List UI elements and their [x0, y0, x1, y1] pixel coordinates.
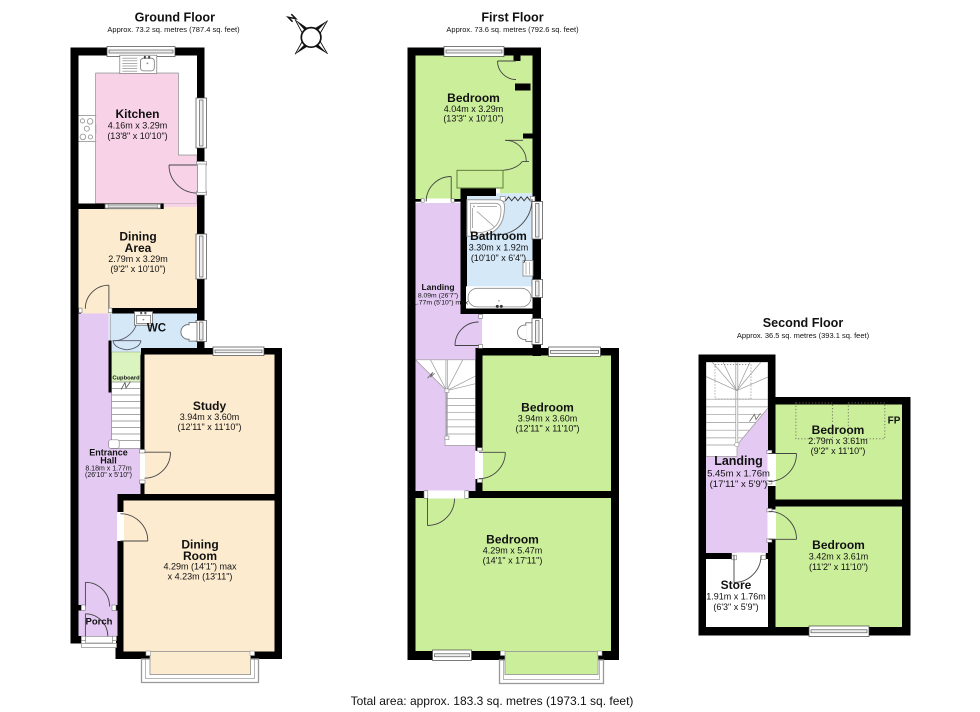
svg-text:8.09m (26'7"): 8.09m (26'7"): [418, 293, 458, 300]
svg-text:Study: Study: [193, 399, 227, 413]
svg-text:(14'1" x 17'11"): (14'1" x 17'11"): [483, 556, 543, 566]
svg-text:Bedroom: Bedroom: [812, 423, 865, 437]
svg-text:Bedroom: Bedroom: [521, 401, 574, 415]
svg-text:Landing: Landing: [421, 282, 454, 292]
svg-text:x 1.77m (5'10") max: x 1.77m (5'10") max: [408, 300, 469, 307]
svg-text:First Floor: First Floor: [481, 11, 543, 25]
svg-text:4.29m (14'1") max: 4.29m (14'1") max: [164, 562, 237, 572]
svg-text:4.04m x 3.29m: 4.04m x 3.29m: [444, 104, 504, 114]
svg-text:Ground Floor: Ground Floor: [135, 11, 216, 25]
svg-text:(11'2" x 11'10"): (11'2" x 11'10"): [809, 562, 868, 572]
svg-text:WC: WC: [147, 323, 166, 335]
svg-text:x 4.23m (13'11"): x 4.23m (13'11"): [168, 572, 233, 582]
svg-text:(9'2" x 11'10"): (9'2" x 11'10"): [811, 446, 866, 456]
svg-text:(13'8" x 10'10"): (13'8" x 10'10"): [107, 131, 167, 141]
svg-text:3.30m x 1.92m: 3.30m x 1.92m: [469, 243, 529, 253]
svg-text:(17'11" x 5'9"): (17'11" x 5'9"): [710, 479, 768, 490]
svg-text:(26'10" x 5'10"): (26'10" x 5'10"): [85, 472, 132, 479]
svg-text:Bedroom: Bedroom: [486, 533, 539, 547]
svg-text:Approx. 73.6 sq. metres (792.6: Approx. 73.6 sq. metres (792.6 sq. feet): [446, 25, 579, 34]
svg-text:Total area: approx. 183.3 sq.: Total area: approx. 183.3 sq. metres (19…: [351, 694, 634, 708]
svg-text:Approx. 36.5 sq. metres (393.1: Approx. 36.5 sq. metres (393.1 sq. feet): [737, 331, 870, 340]
svg-text:1.91m x 1.76m: 1.91m x 1.76m: [706, 592, 766, 602]
svg-text:Bathroom: Bathroom: [470, 229, 527, 243]
svg-text:(9'2" x 10'10"): (9'2" x 10'10"): [110, 264, 165, 274]
svg-text:(10'10" x 6'4"): (10'10" x 6'4"): [471, 253, 526, 263]
svg-text:Kitchen: Kitchen: [115, 107, 159, 121]
svg-text:Bedroom: Bedroom: [812, 538, 865, 552]
svg-text:5.45m x 1.76m: 5.45m x 1.76m: [707, 469, 770, 480]
svg-text:2.79m x 3.29m: 2.79m x 3.29m: [108, 254, 168, 264]
svg-text:(12'11" x 11'10"): (12'11" x 11'10"): [177, 422, 241, 432]
svg-text:(6'3" x 5'9"): (6'3" x 5'9"): [713, 602, 758, 612]
svg-text:Second Floor: Second Floor: [763, 316, 844, 330]
svg-text:3.94m x 3.60m: 3.94m x 3.60m: [180, 412, 240, 422]
svg-text:Hall: Hall: [100, 455, 117, 465]
svg-text:4.29m x 5.47m: 4.29m x 5.47m: [483, 546, 543, 556]
svg-text:Landing: Landing: [714, 454, 763, 468]
svg-text:(13'3" x 10'10"): (13'3" x 10'10"): [443, 113, 503, 123]
svg-text:Cupboard: Cupboard: [112, 376, 140, 382]
svg-text:2.79m x 3.61m: 2.79m x 3.61m: [808, 436, 868, 446]
svg-text:Approx. 73.2 sq. metres (787.4: Approx. 73.2 sq. metres (787.4 sq. feet): [107, 25, 240, 34]
svg-text:Porch: Porch: [86, 617, 113, 628]
svg-text:3.94m x 3.60m: 3.94m x 3.60m: [518, 414, 578, 424]
svg-text:FP: FP: [888, 415, 901, 426]
svg-text:(12'11" x 11'10"): (12'11" x 11'10"): [515, 424, 579, 434]
svg-text:Store: Store: [721, 578, 752, 592]
svg-text:4.16m x 3.29m: 4.16m x 3.29m: [108, 121, 168, 131]
svg-text:Area: Area: [125, 241, 152, 255]
svg-text:3.42m x 3.61m: 3.42m x 3.61m: [809, 552, 869, 562]
